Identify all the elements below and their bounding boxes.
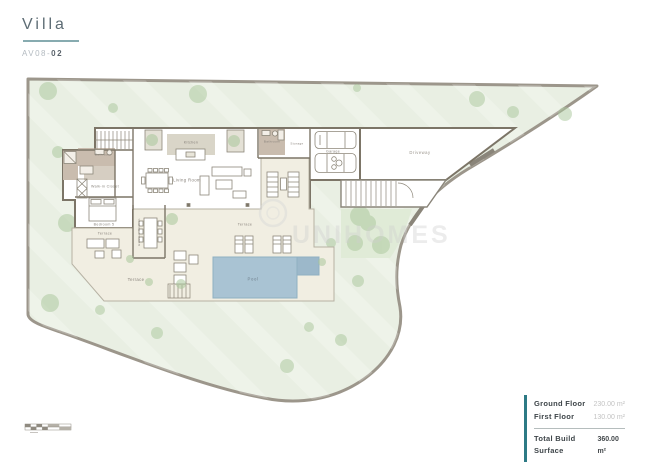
column <box>246 204 249 207</box>
legend-total-label: Total Build Surface <box>534 433 597 457</box>
surface-legend: Ground Floor 230.00 m² First Floor 130.0… <box>524 395 625 462</box>
east-stairs-area <box>341 180 446 207</box>
scale-bar <box>25 424 71 433</box>
legend-label: First Floor <box>534 411 574 423</box>
label-pool: Pool <box>247 277 258 282</box>
jacuzzi <box>297 257 319 275</box>
label-bathroom-left: Bathroom <box>95 153 111 157</box>
bed <box>89 198 116 221</box>
label-kitchen: Kitchen <box>184 141 198 145</box>
car-1 <box>315 132 356 149</box>
site-plan: Kitchen Living Room Bathroom Bathroom St… <box>0 0 650 450</box>
label-terrace-small: Terrace <box>98 232 112 236</box>
legend-divider <box>534 428 625 429</box>
project-code-prefix: AV08- <box>22 49 51 58</box>
legend-row-total: Total Build Surface 360.00 m² <box>534 433 625 458</box>
title-underline <box>23 40 79 42</box>
legend-row-first-floor: First Floor 130.00 m² <box>534 411 625 424</box>
car-2 <box>315 154 356 173</box>
label-bedroom-5: Bedroom 5 <box>94 223 115 227</box>
label-terrace-center: Terrace <box>238 223 252 227</box>
watermark-text: UNIHOMES <box>292 221 451 249</box>
label-walk-in-closet: Walk-in Closet <box>91 185 119 189</box>
title-block: Villa AV08-02 <box>22 16 79 58</box>
column <box>187 204 190 207</box>
legend-value: 130.00 m² <box>593 412 625 424</box>
page-title: Villa <box>22 16 79 34</box>
label-garage: Garage <box>326 150 340 154</box>
project-code: AV08-02 <box>22 49 79 58</box>
label-storage: Storage <box>290 142 303 146</box>
label-terrace-bottom: Terrace <box>128 277 145 282</box>
label-exterior-kitchen: Exterior Kitchen <box>137 218 141 245</box>
legend-row-ground-floor: Ground Floor 230.00 m² <box>534 398 625 411</box>
legend-value: 230.00 m² <box>593 399 625 411</box>
legend-label: Ground Floor <box>534 398 586 410</box>
legend-total-value: 360.00 m² <box>597 434 625 458</box>
label-living-room: Living Room <box>173 178 201 183</box>
label-bathroom-right: Bathroom <box>264 140 280 144</box>
label-driveway: Driveway <box>409 150 431 155</box>
project-code-number: 02 <box>51 49 63 58</box>
